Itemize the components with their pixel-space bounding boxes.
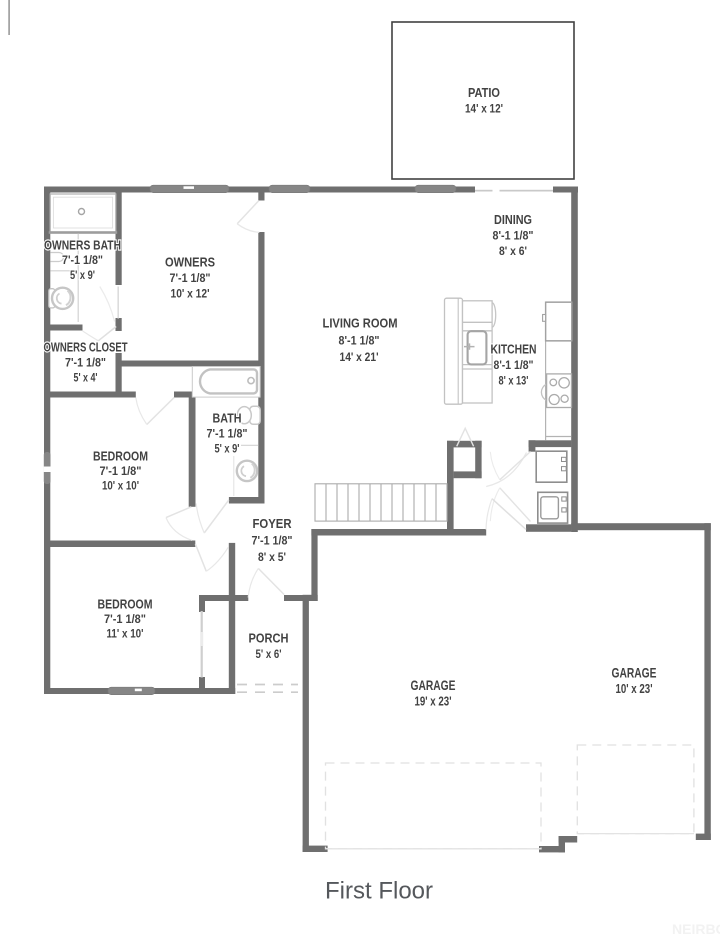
svg-text:NEIRBOR: NEIRBOR bbox=[672, 921, 720, 936]
svg-text:OWNERS: OWNERS bbox=[165, 256, 215, 270]
svg-text:7'-1 1/8": 7'-1 1/8" bbox=[252, 536, 293, 548]
svg-text:OWNERS CLOSET: OWNERS CLOSET bbox=[44, 341, 128, 355]
svg-text:5' x 9': 5' x 9' bbox=[70, 270, 95, 282]
svg-text:14' x 12': 14' x 12' bbox=[465, 104, 503, 116]
svg-text:GARAGE: GARAGE bbox=[612, 665, 657, 681]
svg-text:8'-1 1/8": 8'-1 1/8" bbox=[339, 336, 380, 348]
svg-text:7'-1 1/8": 7'-1 1/8" bbox=[104, 614, 146, 626]
svg-text:5' x 9': 5' x 9' bbox=[215, 444, 240, 456]
svg-text:BEDROOM: BEDROOM bbox=[98, 598, 153, 612]
svg-text:7'-1 1/8": 7'-1 1/8" bbox=[100, 466, 142, 478]
svg-text:KITCHEN: KITCHEN bbox=[491, 343, 537, 357]
svg-text:10' x 10': 10' x 10' bbox=[102, 481, 139, 493]
svg-text:5' x 6': 5' x 6' bbox=[256, 649, 282, 661]
svg-text:19' x 23': 19' x 23' bbox=[415, 695, 452, 709]
svg-text:OWNERS BATH: OWNERS BATH bbox=[44, 239, 121, 253]
svg-text:7'-1 1/8": 7'-1 1/8" bbox=[62, 255, 103, 267]
svg-text:8'-1 1/8": 8'-1 1/8" bbox=[494, 360, 534, 372]
svg-text:7'-1 1/8": 7'-1 1/8" bbox=[207, 429, 248, 441]
svg-text:14' x 21': 14' x 21' bbox=[340, 352, 379, 364]
svg-text:8'-1 1/8": 8'-1 1/8" bbox=[493, 231, 534, 243]
svg-text:LIVING ROOM: LIVING ROOM bbox=[323, 317, 398, 331]
svg-text:11' x 10': 11' x 10' bbox=[107, 629, 144, 641]
svg-text:7'-1 1/8": 7'-1 1/8" bbox=[65, 358, 106, 370]
svg-text:10' x 12': 10' x 12' bbox=[171, 289, 210, 301]
svg-text:First Floor: First Floor bbox=[325, 878, 433, 905]
svg-text:5' x 4': 5' x 4' bbox=[74, 373, 98, 385]
svg-text:PATIO: PATIO bbox=[468, 86, 500, 100]
svg-text:8' x 5': 8' x 5' bbox=[258, 552, 286, 564]
svg-text:FOYER: FOYER bbox=[253, 517, 292, 531]
svg-text:BEDROOM: BEDROOM bbox=[93, 450, 148, 464]
svg-text:DINING: DINING bbox=[494, 213, 532, 227]
svg-text:7'-1 1/8": 7'-1 1/8" bbox=[170, 273, 211, 285]
svg-text:BATH: BATH bbox=[213, 412, 242, 426]
svg-text:PORCH: PORCH bbox=[249, 632, 289, 646]
svg-text:8' x 13': 8' x 13' bbox=[499, 376, 529, 388]
svg-text:10' x 23': 10' x 23' bbox=[616, 682, 653, 696]
svg-text:8' x 6': 8' x 6' bbox=[499, 246, 527, 258]
svg-text:GARAGE: GARAGE bbox=[411, 677, 456, 693]
